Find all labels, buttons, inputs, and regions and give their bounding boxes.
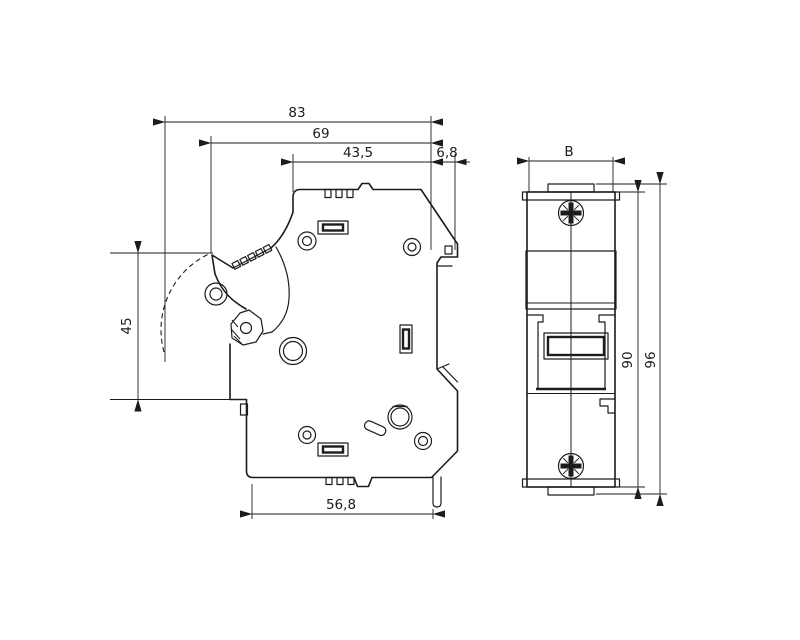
terminal-screw-top-right <box>404 239 421 256</box>
top-tab <box>548 184 594 192</box>
release-lever <box>363 405 412 437</box>
front-view <box>523 184 620 495</box>
terminal-screw-top-left <box>298 232 316 250</box>
right-edge-block <box>437 246 452 266</box>
terminal-screw-bottom-right <box>415 433 432 450</box>
center-vertical-slot <box>400 325 412 353</box>
dim-label-6-8: 6,8 <box>436 145 457 161</box>
lower-terminal-slot <box>318 443 348 456</box>
dim-label-69: 69 <box>312 126 329 142</box>
dim-body-height-90: 90 <box>617 192 645 487</box>
dim-label-83: 83 <box>288 105 305 121</box>
pivot-latch <box>231 310 263 345</box>
dimensions: 83 69 43,5 6,8 45 <box>110 105 667 519</box>
carrier-inner-edge <box>263 247 289 334</box>
dim-label-96: 96 <box>643 351 659 368</box>
mounting-pin <box>433 477 441 507</box>
dim-label-43-5: 43,5 <box>343 145 373 161</box>
dim-label-90: 90 <box>620 351 636 368</box>
dim-base-width-56-8: 56,8 <box>252 484 433 519</box>
dim-total-width-83: 83 <box>165 105 431 362</box>
drawing-canvas: 83 69 43,5 6,8 45 <box>0 0 800 640</box>
upper-terminal-slot <box>318 221 348 234</box>
phillips-screw-top <box>559 201 584 226</box>
center-bushing <box>280 338 307 365</box>
handle-grip-hole <box>205 283 227 305</box>
fuse-window <box>548 337 604 355</box>
dim-module-width-B: B <box>529 144 613 192</box>
carrier-handle-tip <box>212 255 233 274</box>
bottom-vent-tabs <box>326 478 354 485</box>
dim-total-height-96: 96 <box>596 184 667 494</box>
swing-arc <box>161 253 211 352</box>
dim-label-56-8: 56,8 <box>326 497 356 513</box>
technical-drawing: 83 69 43,5 6,8 45 <box>0 0 800 640</box>
side-view <box>161 184 457 508</box>
right-step-detail <box>600 399 615 413</box>
dim-label-B: B <box>564 144 573 160</box>
bottom-tab <box>548 487 594 495</box>
carrier-front-face <box>271 212 293 248</box>
terminal-screw-bottom-left <box>299 427 316 444</box>
fuse-carrier-open <box>161 212 293 352</box>
top-vent-tabs <box>325 190 353 198</box>
phillips-screw-bottom <box>559 454 584 479</box>
dim-label-45: 45 <box>119 317 135 334</box>
dim-upper-width-43-5: 43,5 <box>293 145 431 192</box>
